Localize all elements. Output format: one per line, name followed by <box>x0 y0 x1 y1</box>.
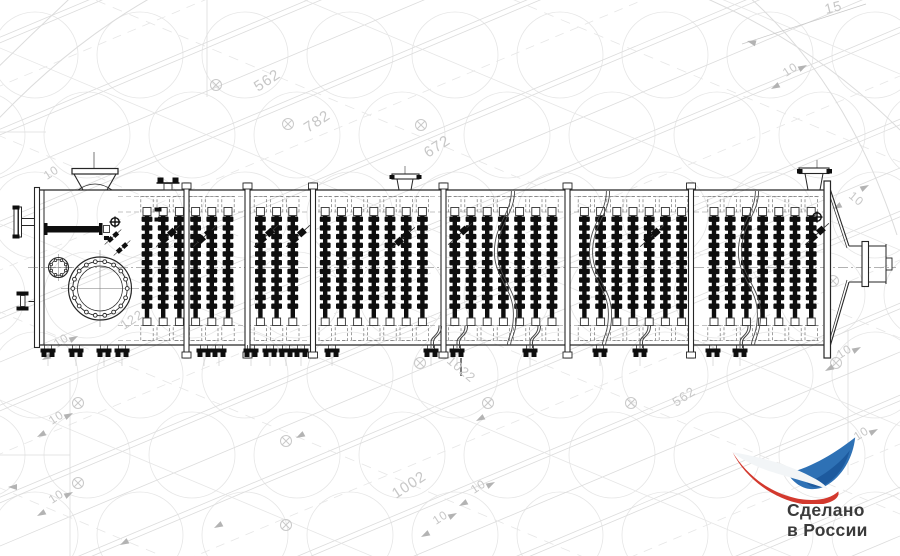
dimension-label: 10 <box>834 341 855 361</box>
baffle-plate <box>563 183 572 358</box>
support-foot <box>263 345 278 366</box>
dimension-label: 10 <box>846 189 867 210</box>
dimension-label: 122 <box>117 306 146 332</box>
baffle-plate <box>309 183 318 358</box>
dimension-label: 10 <box>468 476 489 496</box>
dimension-label: 1022 <box>444 353 479 386</box>
support-foot <box>41 345 56 366</box>
dimension-label: 15 <box>823 0 844 17</box>
flanged-top-nozzle <box>390 166 422 190</box>
support-foot <box>212 345 227 366</box>
leader-line <box>742 4 866 44</box>
support-foot <box>733 345 748 366</box>
small-flange <box>45 254 72 281</box>
vessel-drawing <box>13 152 897 366</box>
dimension-label: 672 <box>421 132 454 162</box>
valve-handwheel-icon <box>110 217 121 228</box>
dimension-label: 10 <box>41 162 62 182</box>
support-foot <box>279 345 294 366</box>
dimension-label: 10 <box>430 507 451 527</box>
support-foot <box>197 345 212 366</box>
support-foot <box>325 345 340 366</box>
outlet-flange <box>862 242 869 287</box>
small-fitting <box>104 236 109 240</box>
dimension-label: 10 <box>46 407 67 427</box>
support-foot <box>69 345 84 366</box>
support-foot <box>633 345 648 366</box>
dimension-label: 10 <box>46 486 67 506</box>
top-manhole-dome <box>72 152 118 190</box>
technical-drawing: 5627826721510101221010101022100210105621… <box>0 0 900 556</box>
tube-bundle <box>141 197 818 341</box>
support-foot <box>523 345 538 366</box>
support-foot <box>115 345 130 366</box>
support-foot <box>706 345 721 366</box>
dimension-label: 782 <box>301 107 334 137</box>
tubesheet <box>824 181 831 358</box>
background-circles <box>0 12 900 556</box>
dimension-label: 562 <box>669 383 698 409</box>
drawing-canvas: 5627826721510101221010101022100210105621… <box>0 0 900 556</box>
support-foot <box>593 345 608 366</box>
